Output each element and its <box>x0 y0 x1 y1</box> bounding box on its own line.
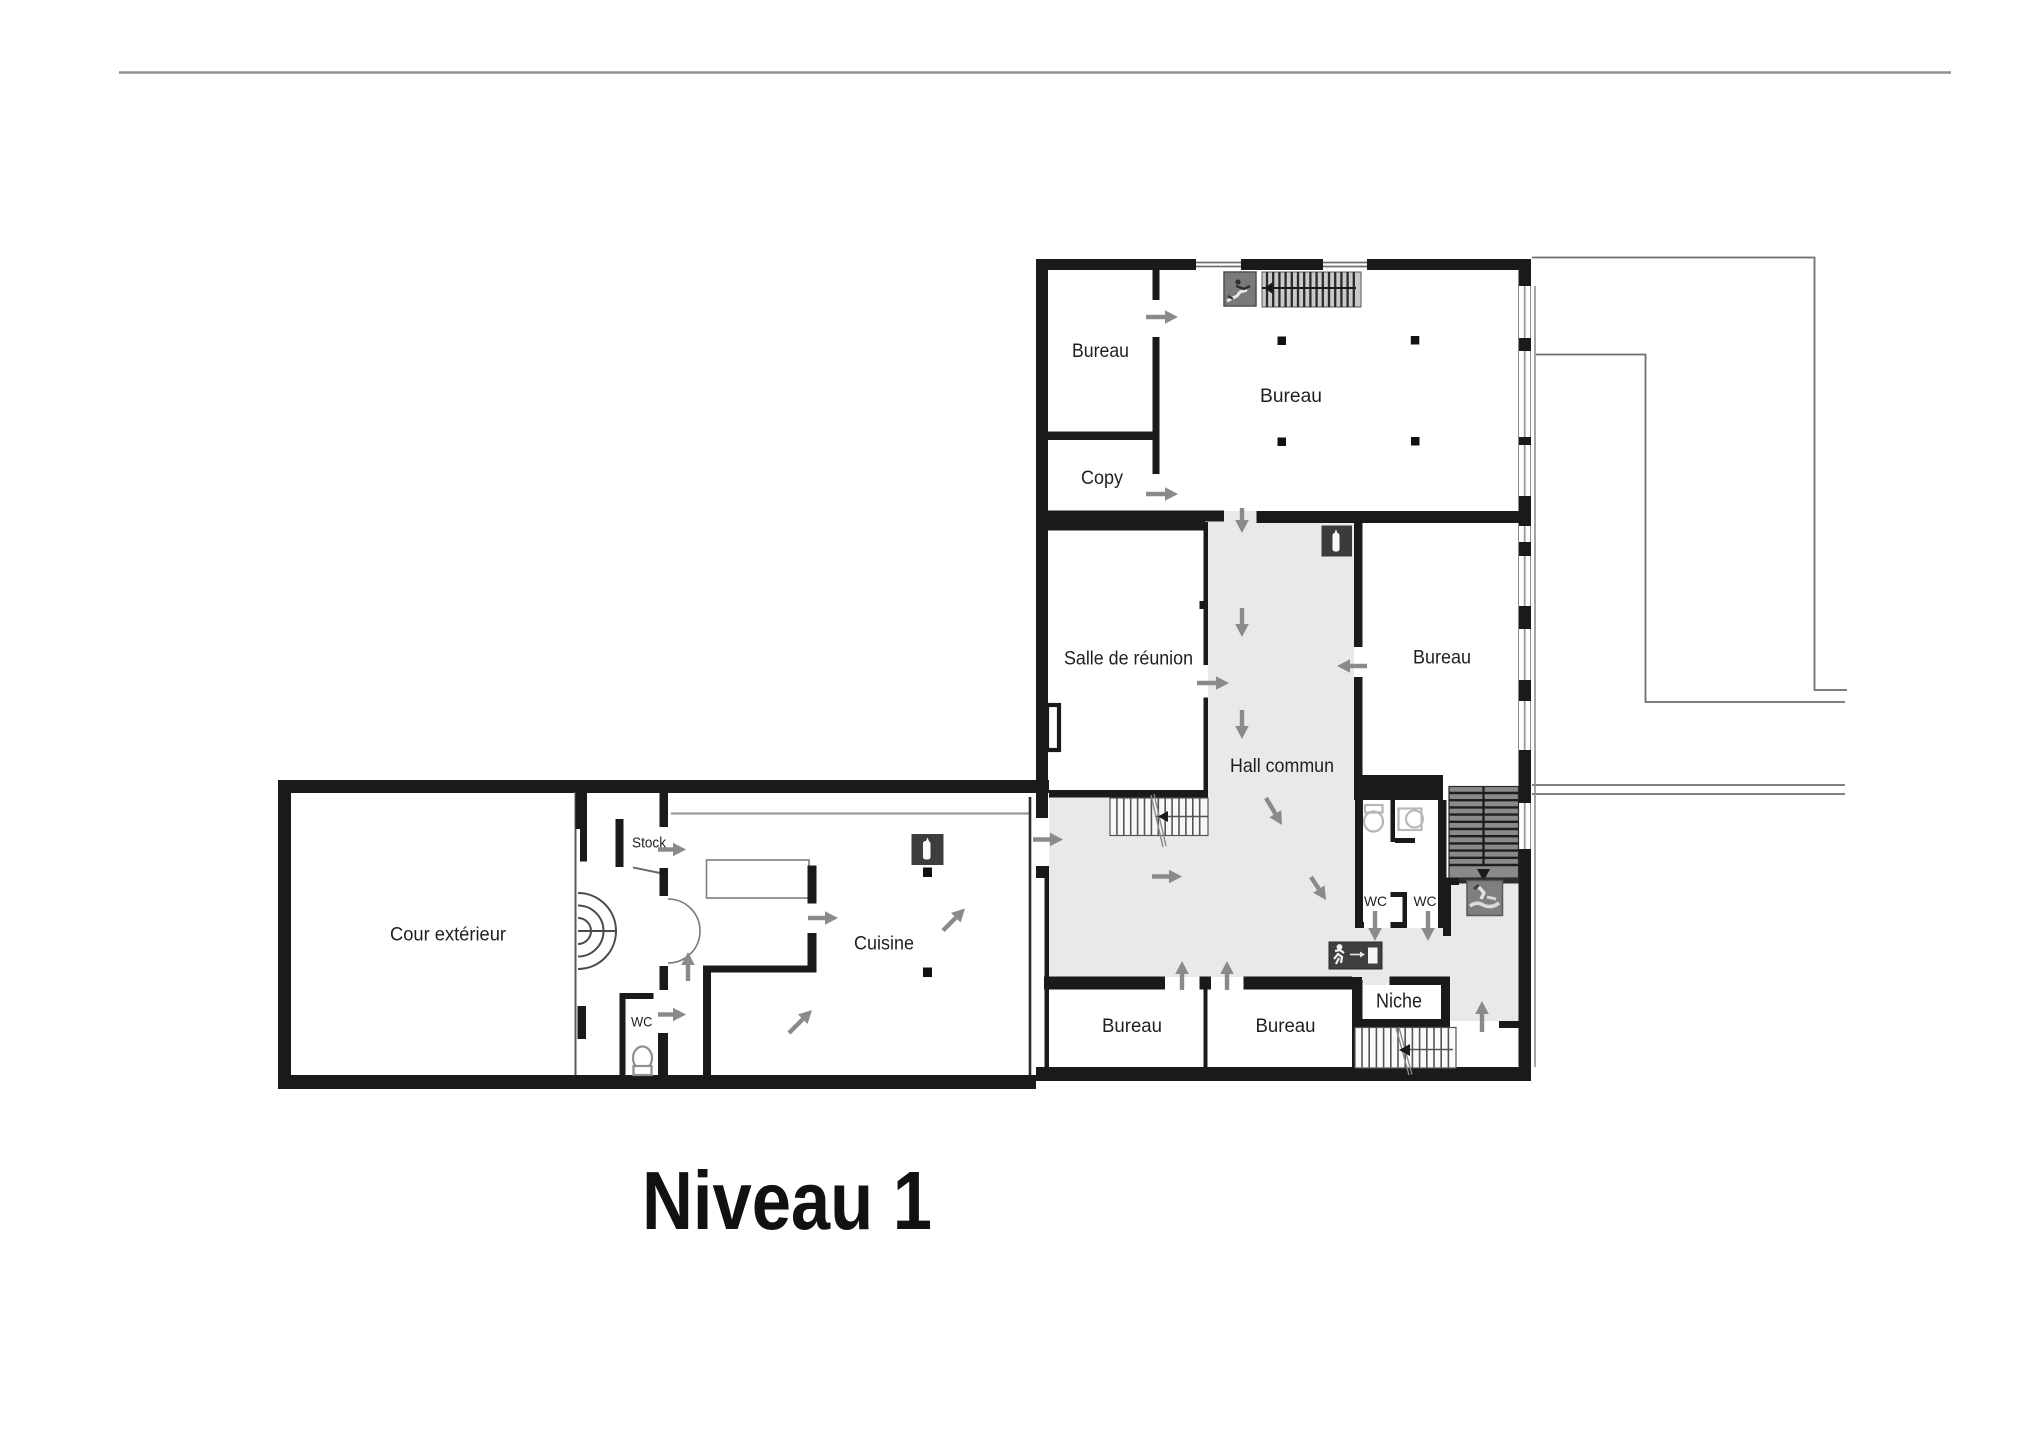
svg-text:Copy: Copy <box>1081 467 1123 489</box>
svg-text:Niche: Niche <box>1376 990 1422 1013</box>
svg-text:Niveau 1: Niveau 1 <box>642 1154 932 1247</box>
svg-text:Bureau: Bureau <box>1260 385 1322 407</box>
svg-text:WC: WC <box>631 1014 653 1030</box>
svg-text:Cour extérieur: Cour extérieur <box>390 924 506 946</box>
svg-text:WC: WC <box>1364 893 1387 909</box>
svg-text:WC: WC <box>1414 893 1437 909</box>
svg-text:Bureau: Bureau <box>1102 1015 1162 1037</box>
svg-text:Bureau: Bureau <box>1256 1015 1316 1037</box>
svg-text:Hall commun: Hall commun <box>1230 755 1334 777</box>
svg-text:Bureau: Bureau <box>1413 647 1471 669</box>
svg-text:Salle de réunion: Salle de réunion <box>1064 648 1193 670</box>
svg-text:Bureau: Bureau <box>1072 340 1129 362</box>
svg-text:Cuisine: Cuisine <box>854 933 914 955</box>
